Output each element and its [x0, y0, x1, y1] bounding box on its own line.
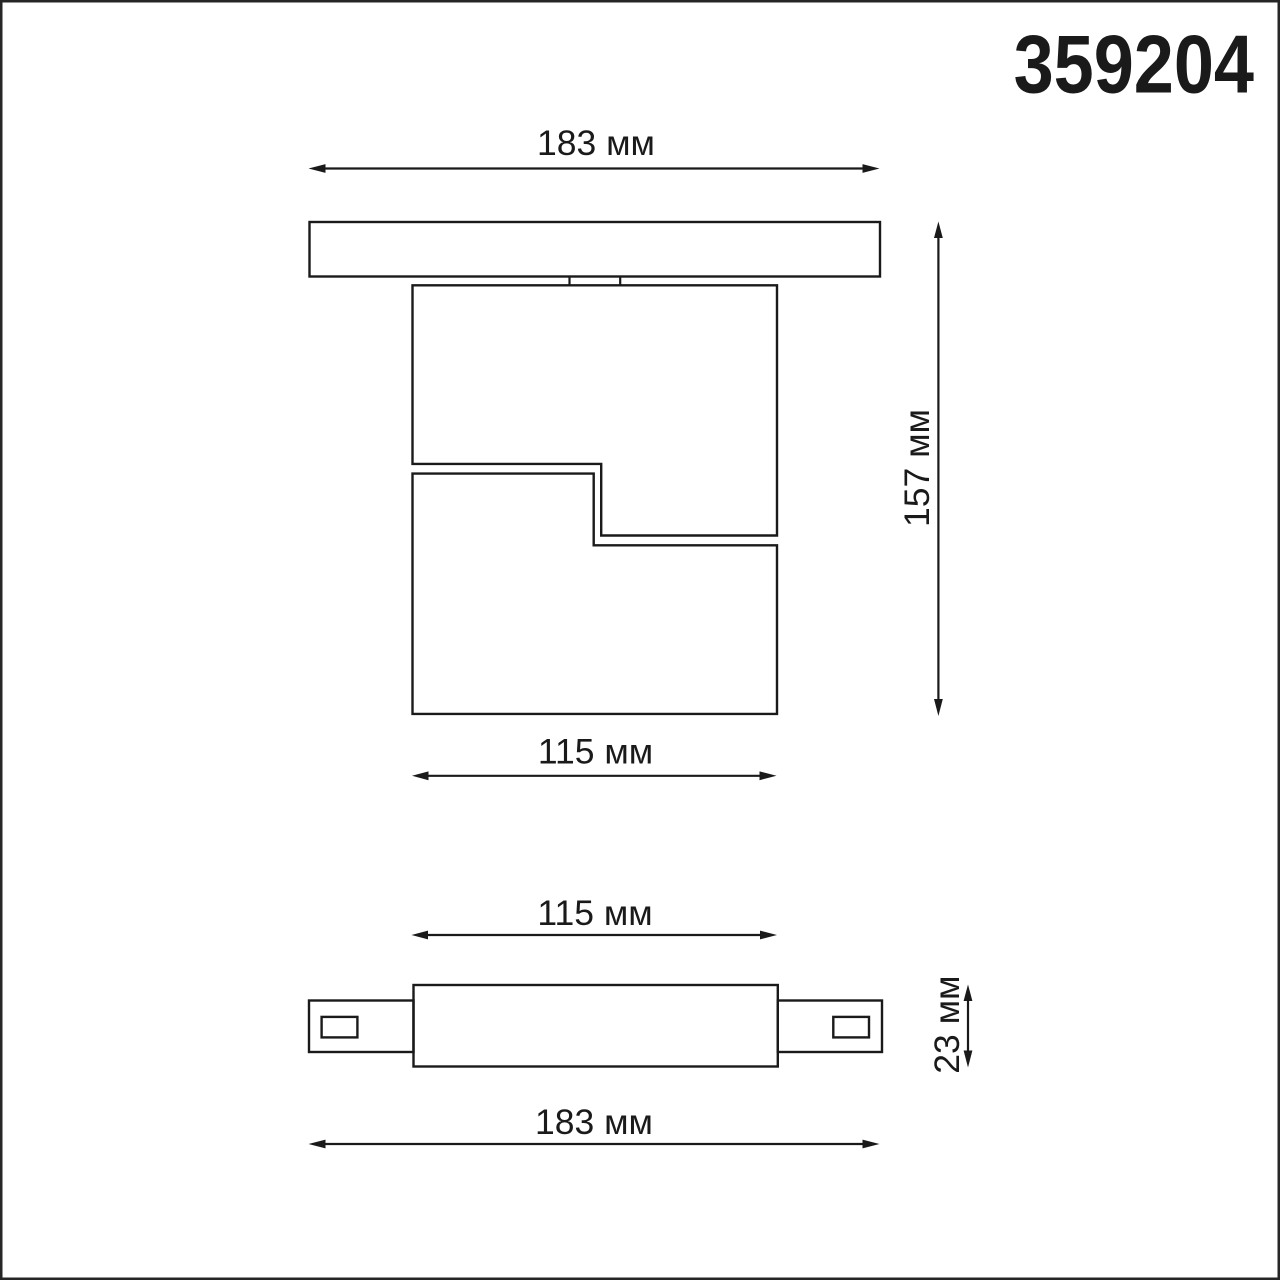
svg-text:183 мм: 183 мм [537, 123, 655, 163]
svg-text:183 мм: 183 мм [535, 1102, 653, 1142]
svg-text:157 мм: 157 мм [897, 409, 937, 527]
svg-text:23 мм: 23 мм [927, 976, 967, 1074]
svg-text:115 мм: 115 мм [537, 893, 652, 933]
svg-text:359204: 359204 [1014, 19, 1254, 111]
svg-text:115 мм: 115 мм [538, 732, 653, 772]
